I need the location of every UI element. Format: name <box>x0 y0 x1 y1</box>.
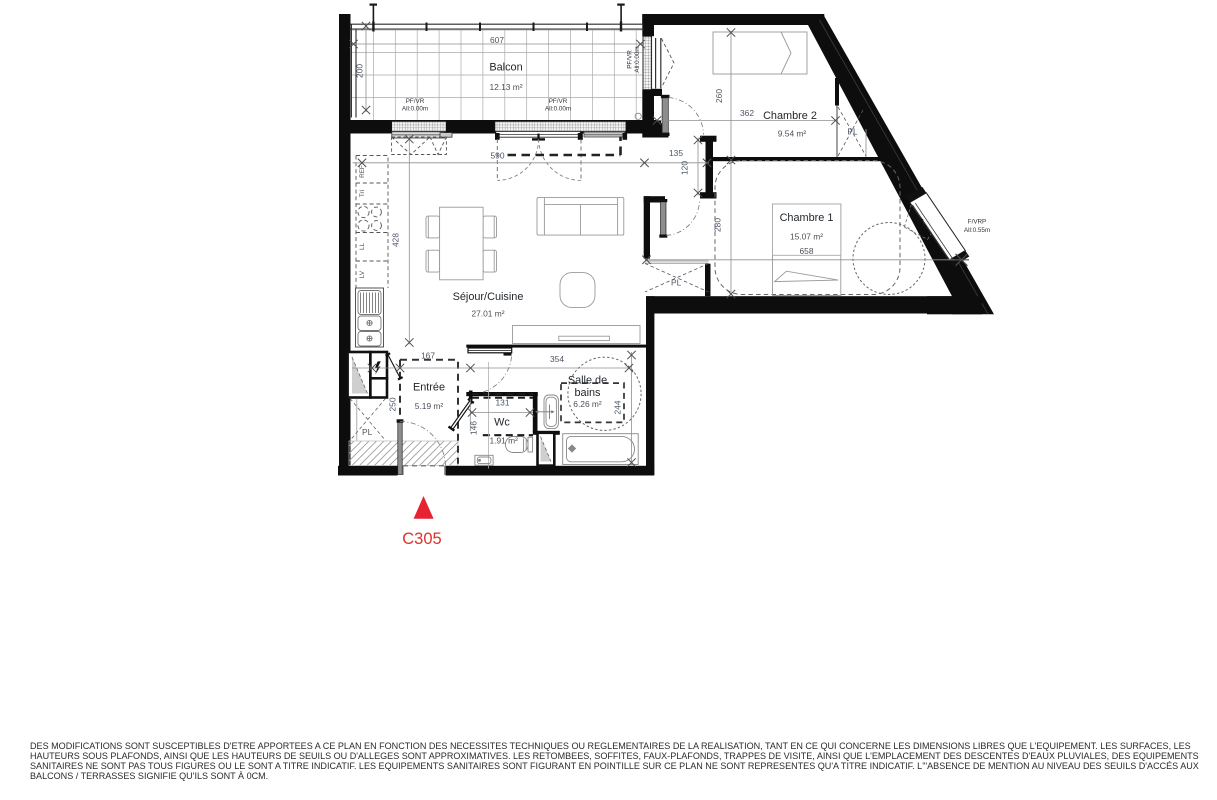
svg-text:15.07 m²: 15.07 m² <box>790 232 823 242</box>
svg-text:Balcon: Balcon <box>489 62 522 74</box>
svg-text:REF: REF <box>359 165 366 178</box>
svg-text:260: 260 <box>714 89 724 103</box>
svg-text:Wc: Wc <box>494 417 510 429</box>
svg-text:BALCONS / TERRASSES SIGNIFIE Q: BALCONS / TERRASSES SIGNIFIE QU'ILS SONT… <box>30 771 268 781</box>
svg-text:Entrée: Entrée <box>413 382 445 394</box>
svg-text:Séjour/Cuisine: Séjour/Cuisine <box>453 291 524 303</box>
svg-text:bains: bains <box>574 387 601 399</box>
svg-text:C305: C305 <box>402 530 441 548</box>
svg-text:131: 131 <box>496 398 510 408</box>
svg-text:590: 590 <box>491 151 505 161</box>
svg-text:428: 428 <box>391 233 401 247</box>
svg-text:Tri: Tri <box>359 190 366 197</box>
svg-text:Salle de: Salle de <box>568 375 607 387</box>
svg-text:12.13 m²: 12.13 m² <box>489 82 522 92</box>
svg-text:6.26 m²: 6.26 m² <box>573 399 602 409</box>
svg-text:607: 607 <box>490 35 504 45</box>
svg-text:362: 362 <box>740 108 754 118</box>
svg-text:PF/VR: PF/VR <box>549 98 568 105</box>
svg-text:All:0.00m: All:0.00m <box>402 106 428 113</box>
svg-text:9.54 m²: 9.54 m² <box>778 129 807 139</box>
svg-text:244: 244 <box>613 400 623 414</box>
svg-text:All:0.00m: All:0.00m <box>545 106 571 113</box>
svg-text:Chambre 1: Chambre 1 <box>780 212 834 224</box>
svg-text:PL: PL <box>671 278 682 288</box>
svg-text:All:0.55m: All:0.55m <box>964 227 990 234</box>
svg-text:DES MODIFICATIONS SONT SUSCEPT: DES MODIFICATIONS SONT SUSCEPTIBLES D'ET… <box>30 741 1191 751</box>
svg-text:200: 200 <box>355 64 365 78</box>
svg-text:LV: LV <box>359 270 366 278</box>
svg-text:120: 120 <box>680 161 690 175</box>
svg-text:280: 280 <box>713 218 723 232</box>
svg-text:27.01 m²: 27.01 m² <box>471 309 504 319</box>
svg-text:SANITAIRES NE SONT PAS TOUS FI: SANITAIRES NE SONT PAS TOUS FIGURES OU L… <box>30 761 1199 771</box>
svg-text:658: 658 <box>800 246 814 256</box>
svg-text:1.91 m²: 1.91 m² <box>489 436 518 446</box>
svg-text:PL: PL <box>362 427 373 437</box>
svg-text:135: 135 <box>669 148 683 158</box>
svg-text:F/VRP: F/VRP <box>968 219 987 226</box>
svg-text:HAUTEURS SOUS PLAFONDS, AINSI: HAUTEURS SOUS PLAFONDS, AINSI QUE LES HA… <box>30 751 1199 761</box>
svg-text:167: 167 <box>421 351 435 361</box>
svg-text:250: 250 <box>388 397 398 411</box>
svg-text:All:0.00m: All:0.00m <box>634 46 641 72</box>
svg-text:5.19 m²: 5.19 m² <box>415 401 444 411</box>
svg-text:354: 354 <box>550 354 564 364</box>
svg-text:PF/VR: PF/VR <box>406 98 425 105</box>
svg-text:LL: LL <box>359 243 366 251</box>
svg-text:PF/VR: PF/VR <box>627 50 634 69</box>
svg-text:146: 146 <box>469 421 479 435</box>
svg-text:PL: PL <box>847 127 858 137</box>
